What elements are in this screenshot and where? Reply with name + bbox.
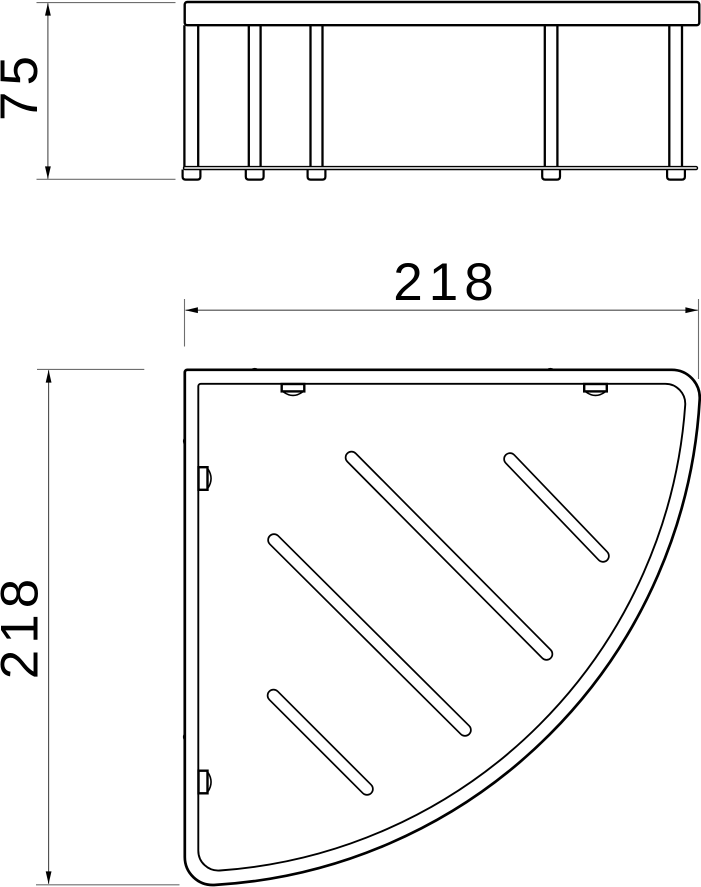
svg-text:218: 218 bbox=[393, 253, 499, 312]
svg-text:218: 218 bbox=[0, 573, 50, 679]
svg-text:75: 75 bbox=[0, 50, 49, 121]
